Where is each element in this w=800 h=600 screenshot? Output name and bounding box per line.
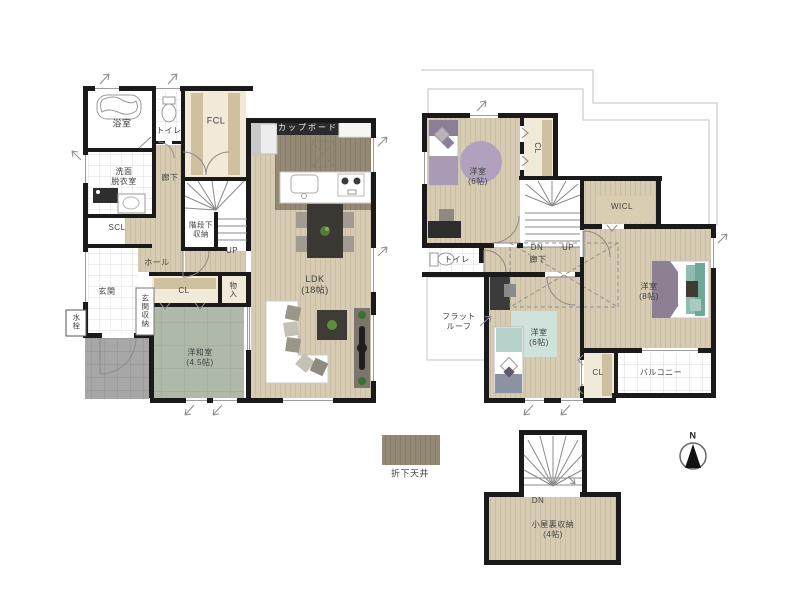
closet-b-shelf [602, 354, 612, 396]
floorplan-drawing [0, 0, 800, 600]
corridor-floor [156, 145, 181, 217]
fcl-shelf-left [191, 93, 203, 175]
toilet2-bowl-icon [438, 253, 454, 265]
toilet-tank-icon [163, 97, 175, 104]
dining-chair-2 [296, 236, 307, 252]
sofa-cushion-3 [285, 337, 301, 353]
tatami-room-floor [152, 307, 244, 398]
tv-lens [357, 343, 367, 353]
stove-burner-2 [354, 178, 361, 185]
stove-burner-1 [342, 178, 349, 185]
floor2-plan [421, 70, 727, 415]
dining-chair-4 [343, 236, 354, 252]
north-compass [680, 443, 706, 469]
washing-machine-icon [93, 188, 118, 203]
fcl-shelf-right [228, 93, 240, 175]
stove-icon [338, 174, 364, 196]
kitchen-sink-icon [291, 175, 318, 193]
dining-chair-3 [343, 212, 354, 228]
wicl-shelf [596, 196, 652, 222]
up-passage-floor [185, 251, 246, 272]
toilet-bowl-icon [162, 104, 176, 122]
balcony-floor [616, 352, 711, 393]
sofa-cushion-1 [285, 305, 302, 322]
round-rug [460, 141, 502, 183]
sofa-cushion-2 [283, 321, 299, 337]
table-plant-icon [320, 226, 330, 236]
toilet2-tank-icon [430, 253, 438, 266]
closet-a-shelf [542, 120, 552, 176]
attic-plan [484, 430, 621, 565]
cupboard-counter [339, 122, 371, 137]
faucet-box [66, 310, 86, 336]
bed-main-throw [690, 299, 701, 311]
desk-a [428, 221, 461, 238]
tv-plant-top-icon [358, 311, 366, 319]
floorplan-canvas: 浴室 トイレ FCL 洗面 脱衣室 廊下 SCL 階段下 収納 UP ホール 玄… [0, 0, 800, 600]
storage-small-floor [222, 276, 246, 303]
bed-a-blanket-bottom [429, 156, 458, 185]
desk-chair-a [439, 209, 454, 222]
legend-swatch-dropped-ceiling [382, 435, 440, 465]
bed-main-headboard [652, 261, 678, 318]
attic-room-floor [489, 497, 616, 560]
porch-floor [85, 338, 149, 399]
bed-b-blanket-top [496, 328, 522, 352]
bed-main-pillow [686, 281, 698, 297]
refrigerator-door [251, 124, 261, 154]
tv-plant-bottom-icon [358, 377, 366, 385]
closet1-shelf [154, 278, 216, 289]
floor1-plan [66, 74, 387, 415]
table-plant-highlight [325, 227, 329, 231]
cupboard-band [277, 122, 339, 135]
entrance-storage-box [136, 288, 154, 335]
dining-chair-1 [296, 212, 307, 228]
corridor2-floor [484, 247, 580, 272]
entrance-floor [88, 248, 138, 333]
flat-roof-area [427, 277, 487, 360]
washing-machine-dot [96, 190, 100, 194]
coffee-table-plant-icon [327, 320, 337, 330]
